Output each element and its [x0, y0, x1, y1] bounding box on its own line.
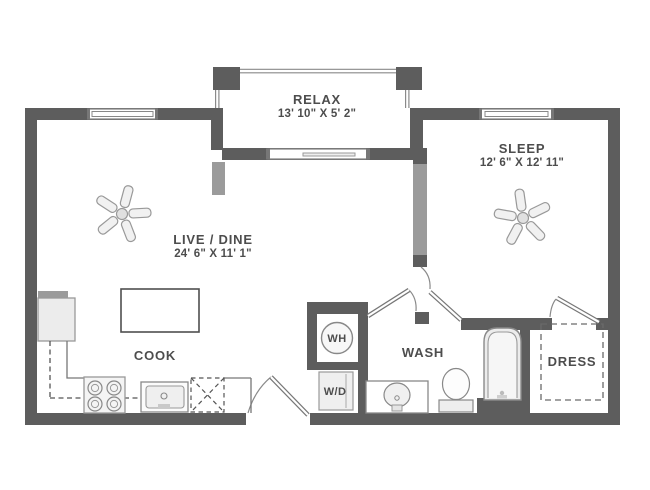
stove-icon: [84, 377, 125, 413]
live-dine-room-dims: 24' 6" X 11' 1": [174, 247, 252, 261]
washer-dryer-label: W/D: [324, 385, 347, 399]
live-dine-room-label: LIVE / DINE: [173, 233, 253, 247]
entry-door-icon: [248, 377, 308, 415]
bathroom-vanity-icon: [366, 381, 428, 413]
ceiling-fan-live-icon: [87, 178, 157, 246]
sliding-door-icon: [266, 149, 370, 160]
refrigerator-icon: [38, 291, 75, 341]
floorplan-canvas: RELAX 13' 10" X 5' 2" SLEEP 12' 6" X 12'…: [0, 0, 650, 490]
sleep-room-dims: 12' 6" X 12' 11": [480, 156, 564, 170]
dishwasher-icon: [191, 378, 224, 412]
cook-room-label: COOK: [134, 349, 176, 363]
relax-room-label: RELAX: [293, 93, 341, 107]
dress-room-label: DRESS: [548, 355, 597, 369]
kitchen-island: [121, 289, 199, 332]
relax-room-dims: 13' 10" X 5' 2": [278, 107, 356, 121]
floorplan-linework: [0, 0, 650, 490]
window-live-icon: [87, 109, 158, 120]
dress-door-icon: [550, 298, 599, 322]
sleep-room-label: SLEEP: [499, 142, 546, 156]
window-sleep-icon: [479, 109, 554, 120]
ceiling-fan-sleep-icon: [490, 185, 555, 248]
kitchen-sink-icon: [141, 382, 188, 412]
wash-door-icon: [368, 290, 416, 316]
bathtub-icon: [484, 328, 521, 400]
bedroom-door-icon: [421, 267, 461, 320]
toilet-icon: [439, 369, 473, 413]
wash-room-label: WASH: [402, 346, 444, 360]
water-heater-label: WH: [327, 332, 346, 346]
